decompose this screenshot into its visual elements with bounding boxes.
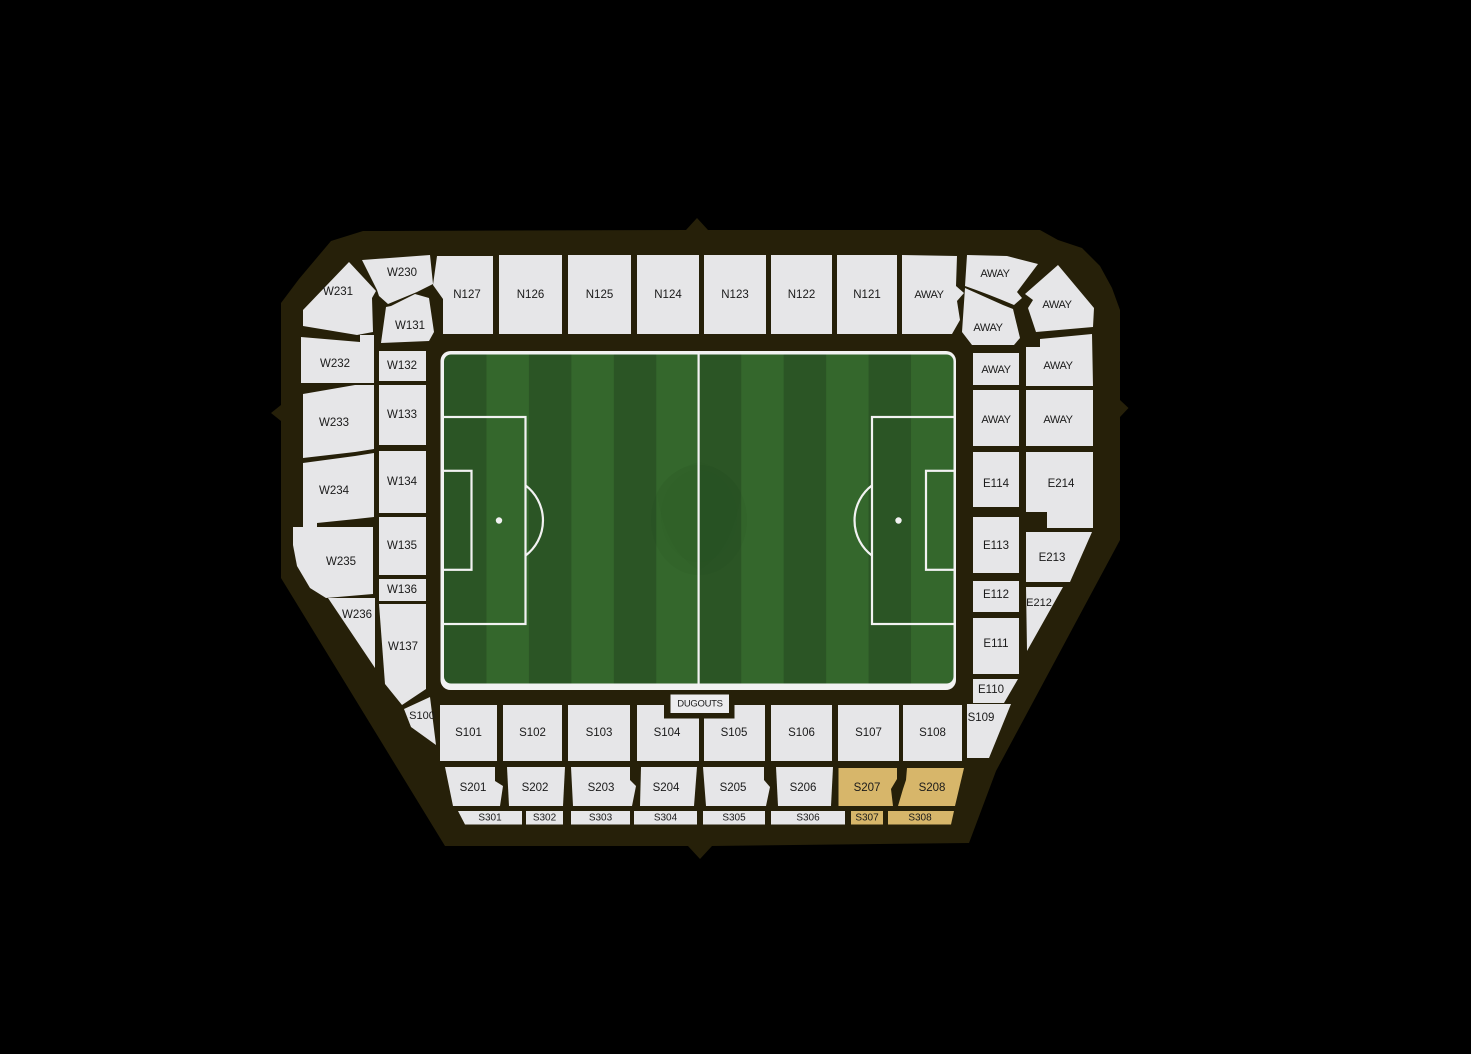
svg-text:W235: W235 — [326, 556, 356, 568]
svg-text:AWAY: AWAY — [980, 268, 1010, 280]
svg-text:W136: W136 — [387, 584, 417, 596]
svg-text:W132: W132 — [387, 360, 417, 372]
svg-text:W135: W135 — [387, 540, 417, 552]
svg-text:E212: E212 — [1026, 597, 1052, 609]
svg-text:AWAY: AWAY — [973, 322, 1003, 334]
svg-text:S109: S109 — [968, 712, 995, 724]
svg-text:S305: S305 — [722, 813, 746, 824]
svg-text:N123: N123 — [721, 289, 749, 301]
svg-text:E111: E111 — [983, 638, 1008, 650]
svg-text:S208: S208 — [919, 782, 946, 794]
svg-text:S108: S108 — [919, 727, 946, 739]
svg-text:S303: S303 — [589, 813, 613, 824]
svg-text:S308: S308 — [908, 813, 932, 824]
svg-text:N124: N124 — [654, 289, 682, 301]
svg-text:W230: W230 — [387, 267, 417, 279]
svg-text:W133: W133 — [387, 409, 417, 421]
svg-text:S103: S103 — [586, 727, 613, 739]
svg-text:N126: N126 — [517, 289, 545, 301]
svg-text:S201: S201 — [460, 782, 487, 794]
svg-text:S100: S100 — [409, 710, 435, 722]
svg-text:AWAY: AWAY — [1043, 360, 1073, 372]
svg-text:S107: S107 — [855, 727, 882, 739]
svg-text:AWAY: AWAY — [981, 364, 1011, 376]
svg-text:W234: W234 — [319, 485, 350, 497]
svg-text:W236: W236 — [342, 609, 372, 621]
svg-text:S101: S101 — [455, 727, 482, 739]
svg-text:AWAY: AWAY — [981, 414, 1011, 426]
svg-text:S304: S304 — [654, 813, 678, 824]
svg-text:E113: E113 — [983, 540, 1009, 552]
svg-text:W131: W131 — [395, 320, 425, 332]
svg-text:S102: S102 — [519, 727, 546, 739]
svg-text:AWAY: AWAY — [1043, 414, 1073, 426]
svg-text:S203: S203 — [588, 782, 615, 794]
svg-text:W231: W231 — [323, 286, 353, 298]
svg-text:AWAY: AWAY — [1042, 299, 1072, 311]
svg-text:S301: S301 — [478, 813, 502, 824]
svg-text:S204: S204 — [653, 782, 680, 794]
svg-text:S306: S306 — [796, 813, 820, 824]
svg-text:S106: S106 — [788, 727, 815, 739]
svg-text:S307: S307 — [855, 813, 879, 824]
svg-text:N125: N125 — [586, 289, 614, 301]
svg-text:E112: E112 — [983, 589, 1009, 601]
svg-text:W134: W134 — [387, 476, 418, 488]
svg-text:N122: N122 — [788, 289, 816, 301]
svg-text:E213: E213 — [1039, 552, 1066, 564]
svg-text:S105: S105 — [721, 727, 748, 739]
svg-text:E214: E214 — [1048, 478, 1075, 490]
svg-text:S206: S206 — [790, 782, 817, 794]
svg-text:S302: S302 — [533, 813, 557, 824]
svg-text:N127: N127 — [453, 289, 481, 301]
svg-text:S205: S205 — [720, 782, 747, 794]
svg-text:W232: W232 — [320, 358, 350, 370]
svg-text:AWAY: AWAY — [914, 289, 944, 301]
svg-text:DUGOUTS: DUGOUTS — [677, 699, 722, 710]
svg-text:W137: W137 — [388, 641, 418, 653]
svg-text:E110: E110 — [978, 684, 1004, 696]
svg-text:S104: S104 — [654, 727, 681, 739]
svg-text:S207: S207 — [854, 782, 881, 794]
svg-text:E114: E114 — [983, 478, 1010, 490]
svg-text:W233: W233 — [319, 417, 349, 429]
svg-text:N121: N121 — [853, 289, 881, 301]
svg-text:S202: S202 — [522, 782, 549, 794]
